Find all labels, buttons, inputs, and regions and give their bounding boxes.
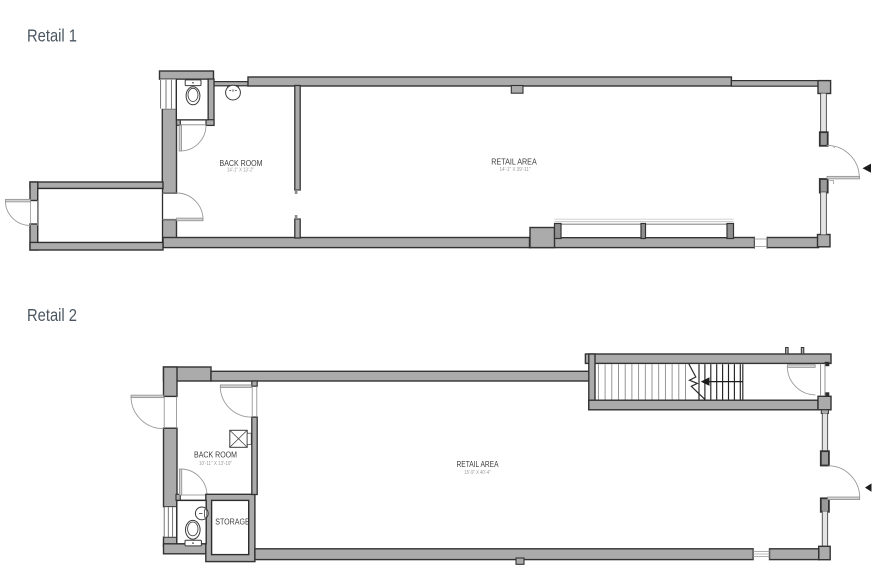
svg-text:14'-1" X 39'-11": 14'-1" X 39'-11" xyxy=(500,167,531,173)
svg-text:10'-11" X 13'-10": 10'-11" X 13'-10" xyxy=(199,461,232,467)
svg-text:Retail 1: Retail 1 xyxy=(27,26,77,46)
svg-text:Retail 2: Retail 2 xyxy=(27,305,77,325)
svg-text:14'-1" X 13'-2": 14'-1" X 13'-2" xyxy=(227,168,254,174)
svg-text:BACK ROOM: BACK ROOM xyxy=(194,451,237,460)
svg-text:15'-9" X 40'-4": 15'-9" X 40'-4" xyxy=(464,470,491,476)
svg-text:RETAIL AREA: RETAIL AREA xyxy=(491,158,537,167)
svg-text:STORAGE: STORAGE xyxy=(215,518,250,527)
svg-text:RETAIL AREA: RETAIL AREA xyxy=(457,460,500,469)
